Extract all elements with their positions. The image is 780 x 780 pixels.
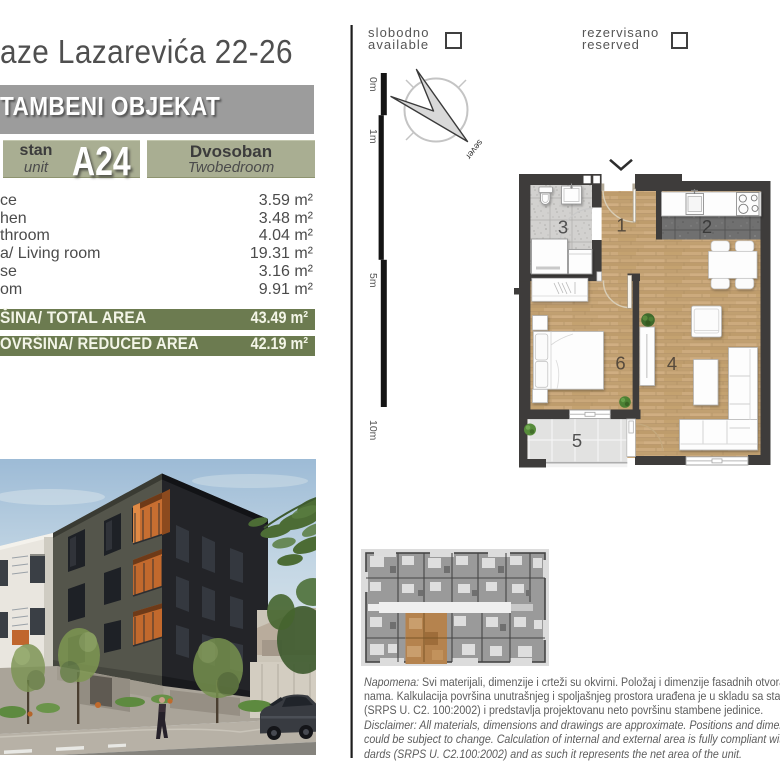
svg-text:0m: 0m [367, 77, 379, 92]
svg-text:3: 3 [558, 217, 568, 238]
svg-text:6: 6 [615, 353, 625, 374]
svg-text:1m: 1m [367, 129, 379, 144]
svg-text:5m: 5m [367, 273, 379, 288]
svg-text:1: 1 [616, 215, 626, 236]
svg-text:10m: 10m [367, 420, 379, 441]
svg-text:5: 5 [572, 430, 582, 451]
svg-text:4: 4 [667, 353, 677, 374]
svg-text:2: 2 [702, 216, 712, 237]
